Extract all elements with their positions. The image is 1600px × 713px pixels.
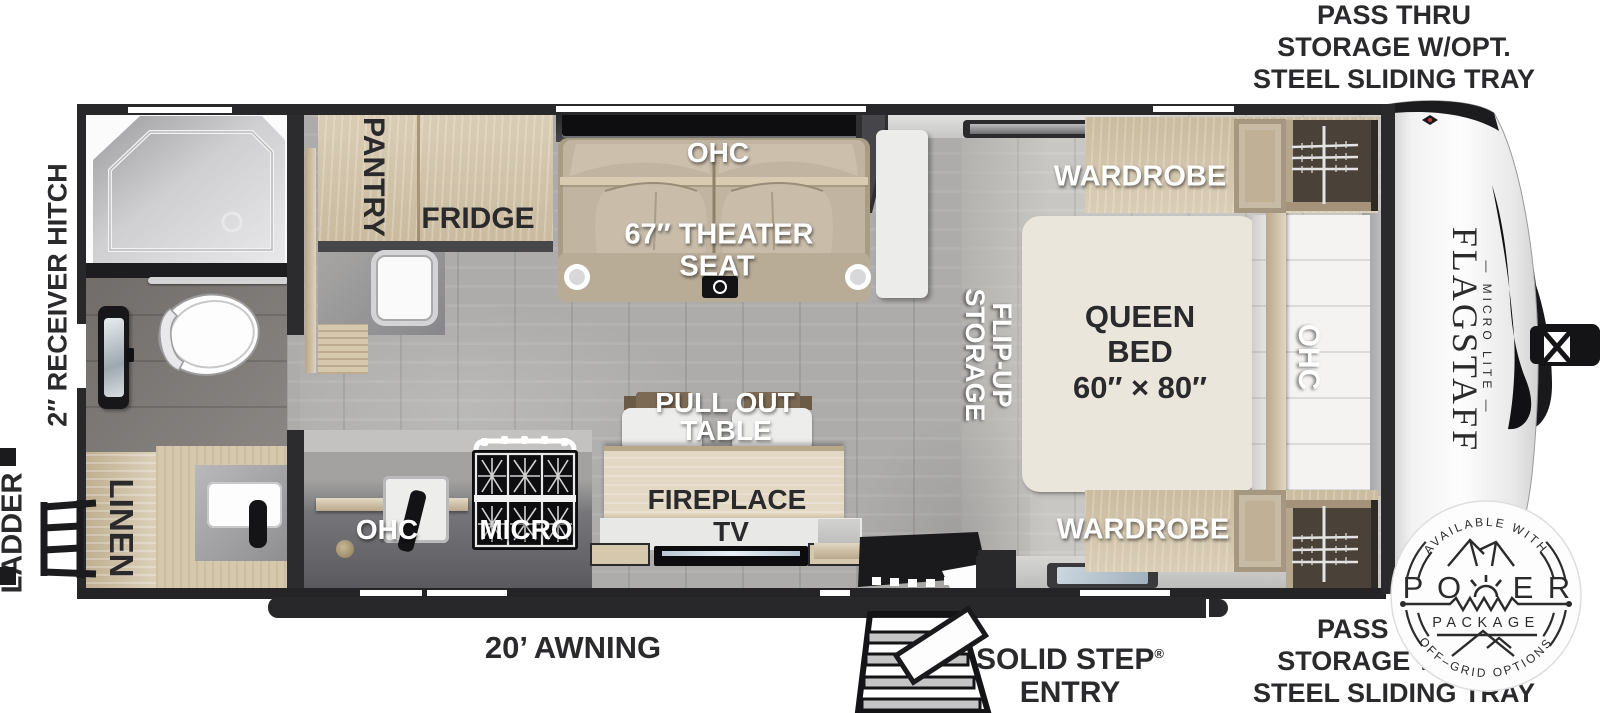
svg-text:FLAGSTAFF: FLAGSTAFF bbox=[1445, 227, 1485, 453]
svg-text:P: P bbox=[1403, 570, 1424, 605]
svg-text:PACKAGE: PACKAGE bbox=[1432, 615, 1540, 631]
svg-text:— MICRO LITE —: — MICRO LITE — bbox=[1480, 260, 1494, 415]
svg-text:E: E bbox=[1513, 570, 1534, 605]
svg-text:R: R bbox=[1548, 570, 1570, 605]
